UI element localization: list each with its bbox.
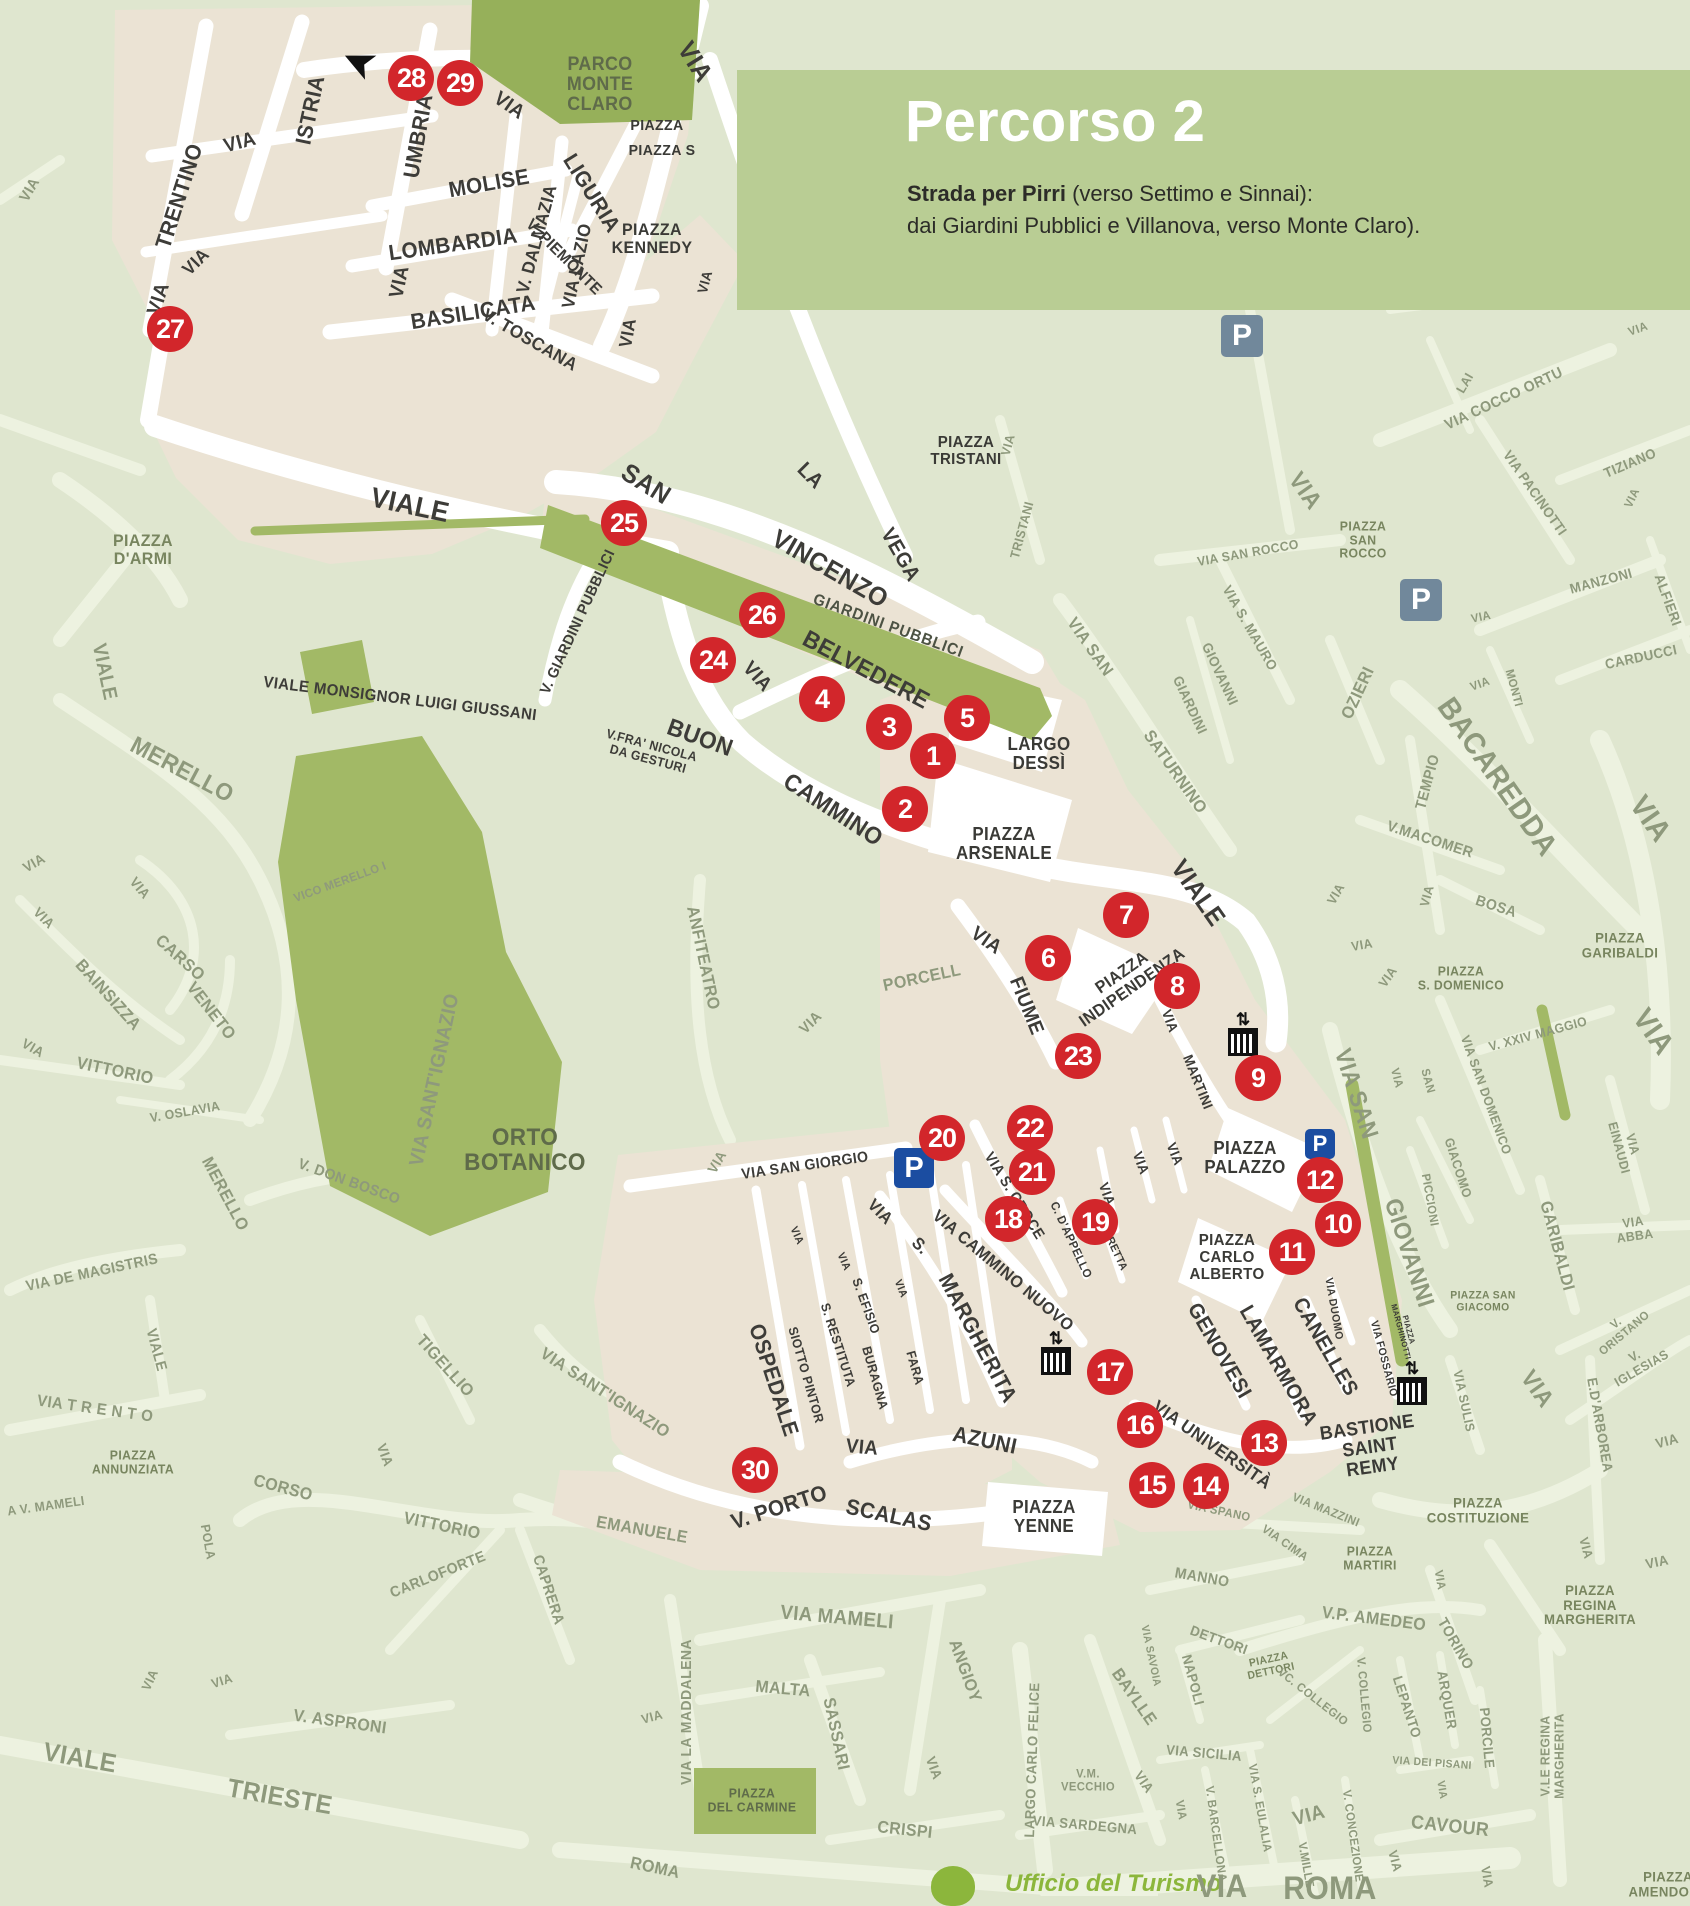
poi-marker-26[interactable]: 26: [739, 592, 785, 638]
header-panel: Percorso 2 Strada per Pirri (verso Setti…: [737, 70, 1690, 310]
poi-marker-4[interactable]: 4: [799, 676, 845, 722]
elevator-cabin-glyph: [1041, 1347, 1071, 1375]
poi-marker-5[interactable]: 5: [944, 695, 990, 741]
page-title: Percorso 2: [905, 88, 1205, 155]
poi-marker-30[interactable]: 30: [732, 1447, 778, 1493]
poi-marker-18[interactable]: 18: [985, 1196, 1031, 1242]
poi-marker-6[interactable]: 6: [1025, 935, 1071, 981]
poi-marker-16[interactable]: 16: [1117, 1402, 1163, 1448]
poi-marker-27[interactable]: 27: [147, 306, 193, 352]
poi-marker-2[interactable]: 2: [882, 786, 928, 832]
poi-marker-3[interactable]: 3: [866, 704, 912, 750]
parking-icon[interactable]: P: [1305, 1129, 1335, 1159]
elevator-arrows-glyph: ⇅: [1038, 1331, 1074, 1346]
poi-marker-12[interactable]: 12: [1297, 1157, 1343, 1203]
poi-marker-17[interactable]: 17: [1087, 1349, 1133, 1395]
route-description-rest: (verso Settimo e Sinnai):: [1066, 181, 1313, 206]
poi-marker-1[interactable]: 1: [910, 733, 956, 779]
poi-marker-23[interactable]: 23: [1055, 1033, 1101, 1079]
poi-marker-10[interactable]: 10: [1315, 1201, 1361, 1247]
route-description: Strada per Pirri (verso Settimo e Sinnai…: [907, 178, 1420, 242]
poi-marker-20[interactable]: 20: [919, 1115, 965, 1161]
poi-marker-7[interactable]: 7: [1103, 892, 1149, 938]
poi-marker-21[interactable]: 21: [1009, 1149, 1055, 1195]
parking-icon[interactable]: P: [1221, 315, 1263, 357]
poi-marker-28[interactable]: 28: [388, 55, 434, 101]
tourism-office-icon[interactable]: [931, 1866, 975, 1906]
route-description-bold: Strada per Pirri: [907, 181, 1066, 206]
elevator-icon[interactable]: ⇅: [1225, 1012, 1261, 1056]
poi-marker-25[interactable]: 25: [601, 500, 647, 546]
poi-marker-13[interactable]: 13: [1241, 1420, 1287, 1466]
elevator-icon[interactable]: ⇅: [1038, 1331, 1074, 1375]
elevator-cabin-glyph: [1397, 1377, 1427, 1405]
poi-marker-19[interactable]: 19: [1072, 1199, 1118, 1245]
poi-marker-9[interactable]: 9: [1235, 1055, 1281, 1101]
elevator-cabin-glyph: [1228, 1028, 1258, 1056]
poi-marker-14[interactable]: 14: [1183, 1463, 1229, 1509]
city-map: Percorso 2 Strada per Pirri (verso Setti…: [0, 0, 1690, 1896]
tourism-office-label: Ufficio del Turismo: [1005, 1870, 1221, 1898]
poi-marker-8[interactable]: 8: [1154, 963, 1200, 1009]
poi-marker-11[interactable]: 11: [1269, 1229, 1315, 1275]
poi-marker-29[interactable]: 29: [437, 60, 483, 106]
elevator-arrows-glyph: ⇅: [1394, 1361, 1430, 1376]
parking-icon[interactable]: P: [1400, 579, 1442, 621]
elevator-icon[interactable]: ⇅: [1394, 1361, 1430, 1405]
poi-marker-24[interactable]: 24: [690, 637, 736, 683]
elevator-arrows-glyph: ⇅: [1225, 1012, 1261, 1027]
route-description-line2: dai Giardini Pubblici e Villanova, verso…: [907, 213, 1420, 238]
poi-marker-15[interactable]: 15: [1129, 1462, 1175, 1508]
poi-marker-22[interactable]: 22: [1007, 1105, 1053, 1151]
